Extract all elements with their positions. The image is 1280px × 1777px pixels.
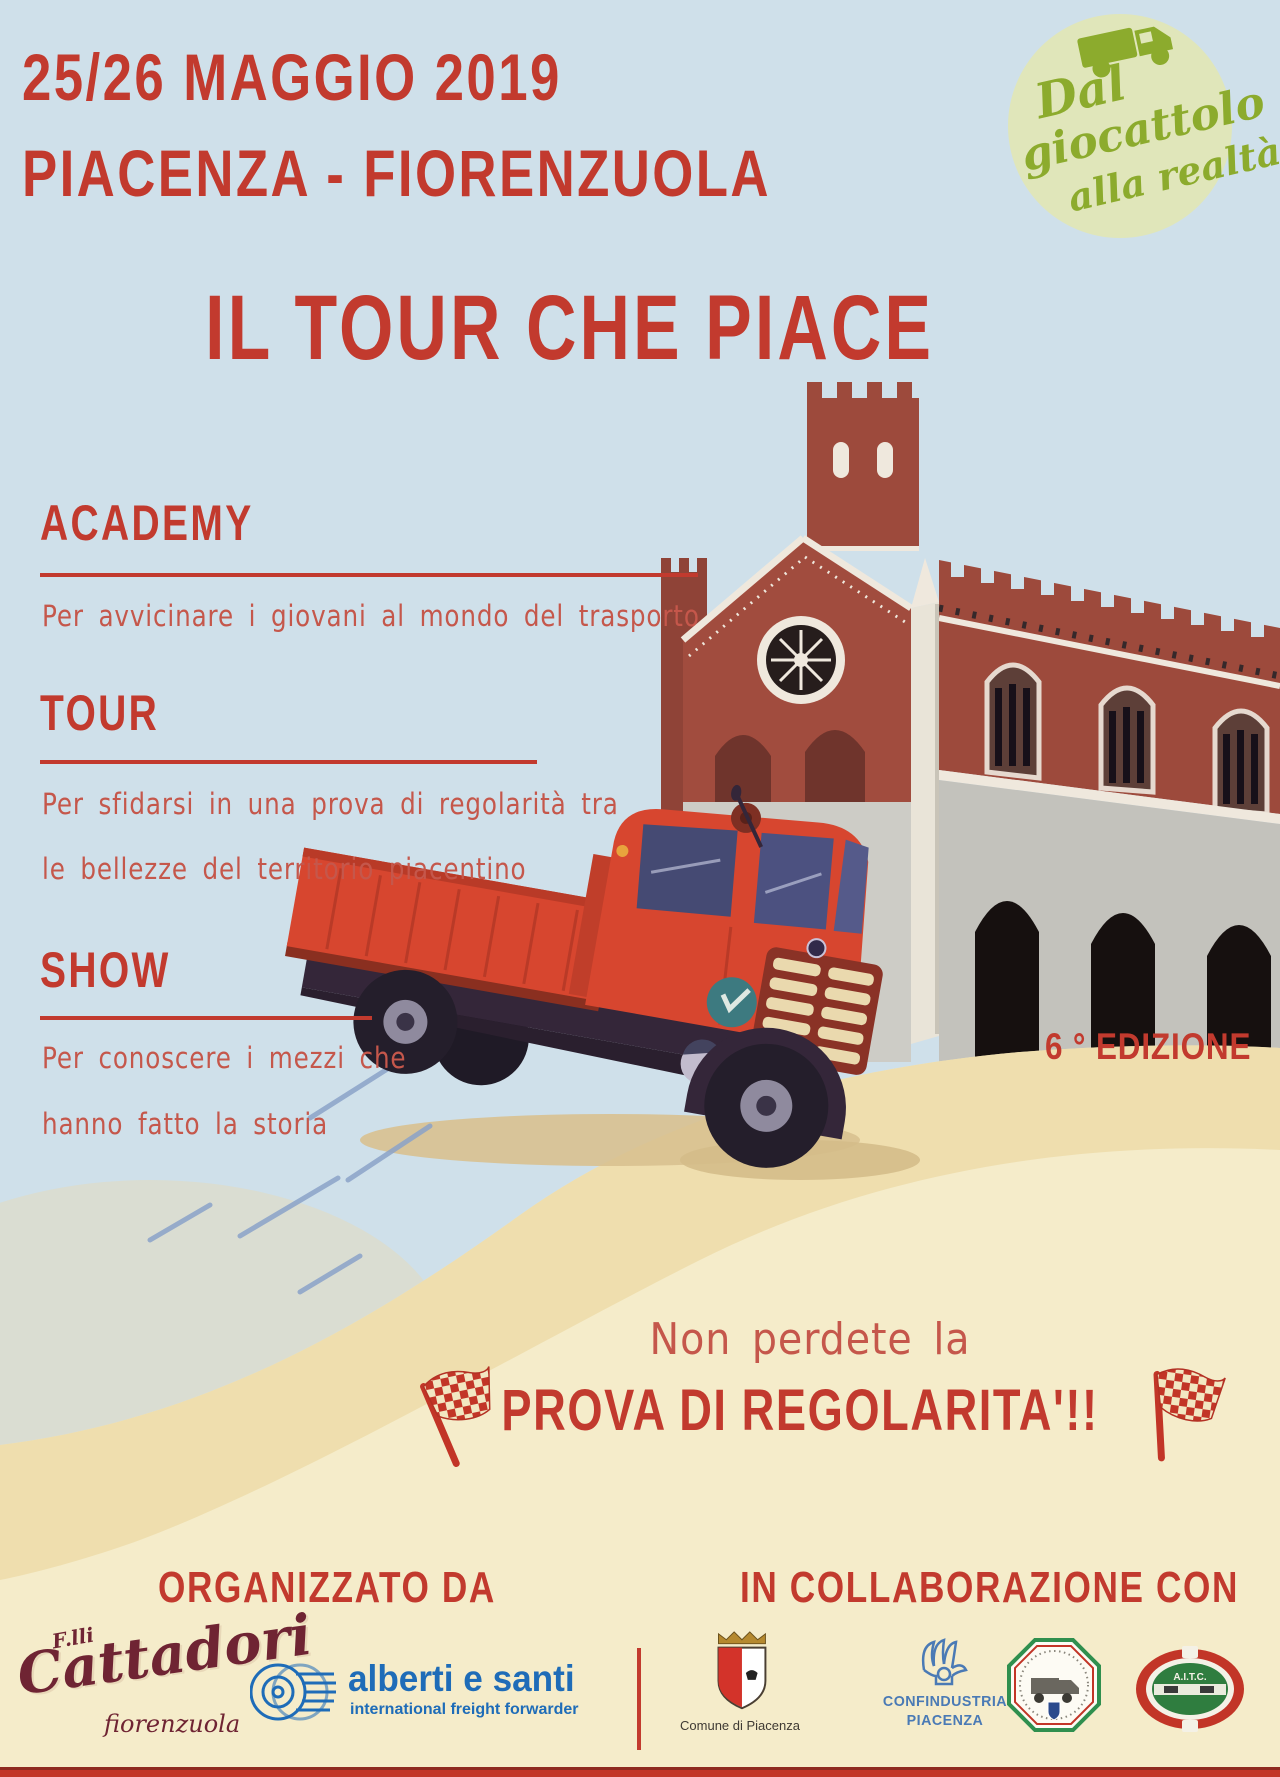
alberti-tagline: international freight forwarder	[350, 1702, 578, 1718]
organized-by-heading: ORGANIZZATO DA	[147, 1566, 507, 1610]
section-heading-show: SHOW	[40, 945, 171, 995]
show-rule	[40, 1016, 372, 1020]
section-heading-tour: TOUR	[40, 688, 159, 738]
show-text-line2: hanno fatto la storia	[42, 1110, 328, 1139]
academy-rule	[40, 573, 698, 577]
bottom-red-bar	[0, 1767, 1280, 1777]
aite-emblem-icon: A.I.T.C.	[1132, 1646, 1248, 1732]
collaboration-heading: IN COLLABORAZIONE CON	[740, 1566, 1140, 1610]
event-route: PIACENZA - FIORENZUOLA	[22, 140, 771, 206]
comune-shield-icon	[710, 1630, 770, 1718]
confindustria-eagle-icon	[912, 1634, 976, 1692]
callout-intro: Non perdete la	[567, 1318, 1053, 1362]
checkered-flag-right-icon	[1131, 1353, 1229, 1472]
globe-icon	[250, 1660, 338, 1726]
tour-text-line1: Per sfidarsi in una prova di regolarità …	[42, 790, 619, 819]
tour-text-line2: le bellezze del territorio piacentino	[42, 855, 526, 884]
cattadori-logo: F.lli Cattadori fiorenzuola	[12, 1626, 272, 1751]
poster-illustration	[0, 0, 1280, 1777]
poster-title-wrap: IL TOUR CHE PIACE	[0, 282, 1140, 374]
aite-label: A.I.T.C.	[1173, 1672, 1207, 1683]
show-text-line1: Per conoscere i mezzi che	[42, 1044, 406, 1073]
edition-label: 6 ° EDIZIONE	[1045, 1028, 1251, 1065]
tour-rule	[40, 760, 537, 764]
alberti-name: alberti e santi	[348, 1660, 575, 1697]
cattadori-city: fiorenzuola	[104, 1712, 240, 1736]
callout-main: PROVA DI REGOLARITA'!!	[496, 1382, 1104, 1440]
section-heading-academy: ACADEMY	[40, 498, 254, 548]
footer-divider	[637, 1648, 641, 1750]
poster-title: IL TOUR CHE PIACE	[206, 282, 935, 374]
event-poster: 25/26 MAGGIO 2019 PIACENZA - FIORENZUOLA…	[0, 0, 1280, 1777]
event-date: 25/26 MAGGIO 2019	[22, 44, 562, 110]
confindustria-line1: CONFINDUSTRIA	[864, 1694, 1026, 1709]
club-emblem-icon	[1005, 1636, 1103, 1734]
comune-caption: Comune di Piacenza	[655, 1719, 825, 1732]
academy-text: Per avvicinare i giovani al mondo del tr…	[42, 602, 700, 631]
confindustria-line2: PIACENZA	[864, 1713, 1026, 1728]
